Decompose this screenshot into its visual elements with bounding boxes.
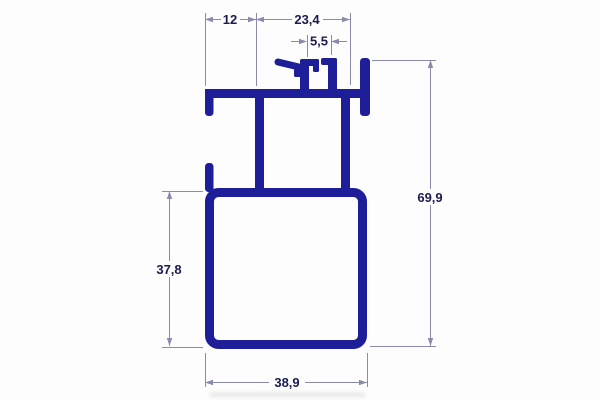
profile-left-stub [205, 163, 214, 192]
dim-label-37-8: 37,8 [156, 262, 181, 277]
dim-label-38-9: 38,9 [274, 375, 299, 390]
dimension-overall-height: 69,9 [412, 60, 448, 346]
bottom-smudge [210, 393, 365, 397]
profile-left-leg [205, 92, 214, 116]
profile-technical-drawing: 12 23,4 5,5 69,9 37,8 [0, 0, 600, 400]
dim-label-5-5: 5,5 [310, 34, 328, 49]
profile-clip-tooth [313, 59, 319, 72]
profile-main-box [210, 193, 363, 345]
dimension-body-height: 37,8 [151, 191, 188, 346]
dimension-body-width: 38,9 [205, 375, 367, 390]
profile-u-left-cap [321, 58, 337, 65]
dim-label-23-4: 23,4 [294, 12, 320, 27]
dimension-slot: 5,5 [291, 34, 347, 49]
dim-label-12: 12 [223, 12, 237, 27]
profile-u-right-bar [360, 58, 370, 116]
dim-label-69-9: 69,9 [417, 190, 442, 205]
aluminum-profile [205, 58, 370, 345]
profile-upper-right-stem [341, 95, 350, 195]
drawing-canvas: 12 23,4 5,5 69,9 37,8 [0, 0, 600, 400]
dimension-top: 12 23,4 [205, 12, 350, 27]
profile-upper-left-wall [255, 95, 264, 195]
profile-clip-spur [278, 62, 303, 68]
